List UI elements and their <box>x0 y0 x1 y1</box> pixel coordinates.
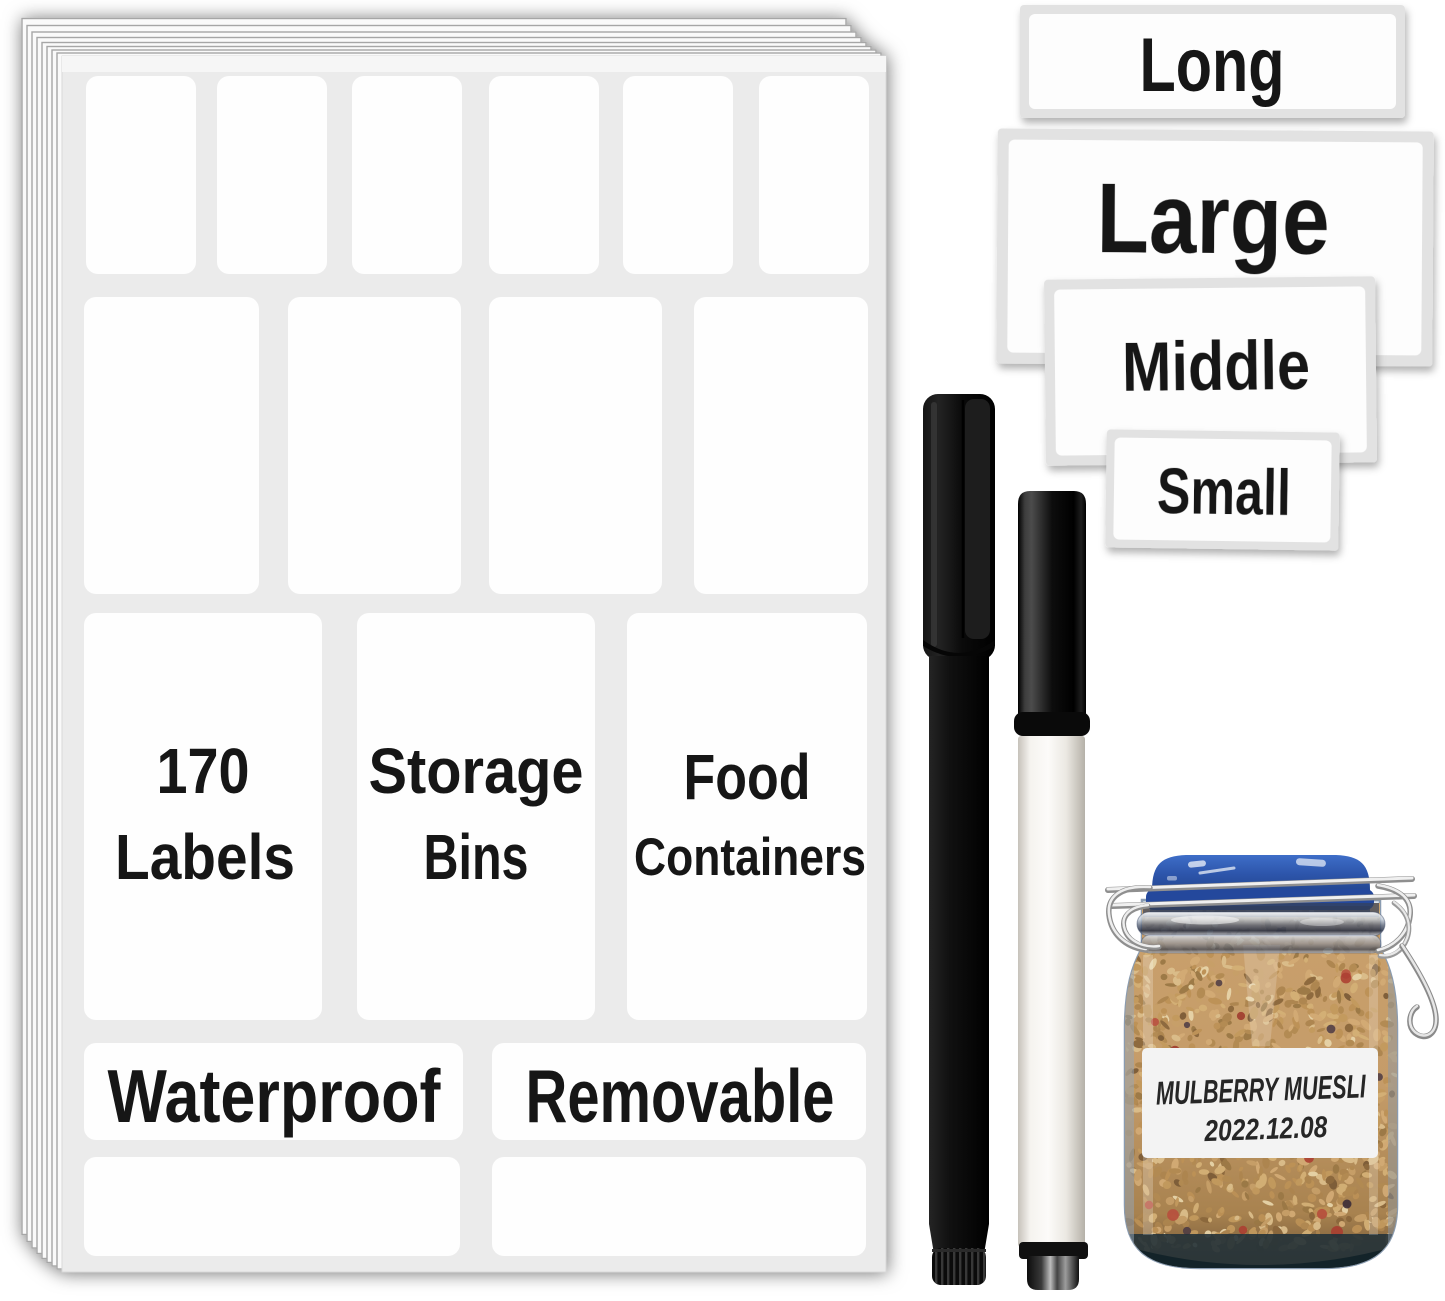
svg-text:Labels: Labels <box>115 821 295 893</box>
svg-text:Large: Large <box>1096 162 1330 275</box>
svg-text:MULBERRY MUESLI: MULBERRY MUESLI <box>1155 1067 1367 1111</box>
svg-text:Food: Food <box>684 741 811 813</box>
svg-text:2022.12.08: 2022.12.08 <box>1203 1111 1328 1148</box>
svg-text:Waterproof: Waterproof <box>108 1054 442 1138</box>
svg-text:170: 170 <box>157 735 250 807</box>
svg-text:Long: Long <box>1140 23 1285 108</box>
svg-text:Small: Small <box>1156 454 1291 529</box>
svg-text:Bins: Bins <box>424 821 529 893</box>
svg-text:Storage: Storage <box>369 735 584 807</box>
svg-text:Middle: Middle <box>1122 326 1311 406</box>
svg-text:Removable: Removable <box>526 1054 835 1138</box>
svg-text:Containers: Containers <box>634 828 866 887</box>
